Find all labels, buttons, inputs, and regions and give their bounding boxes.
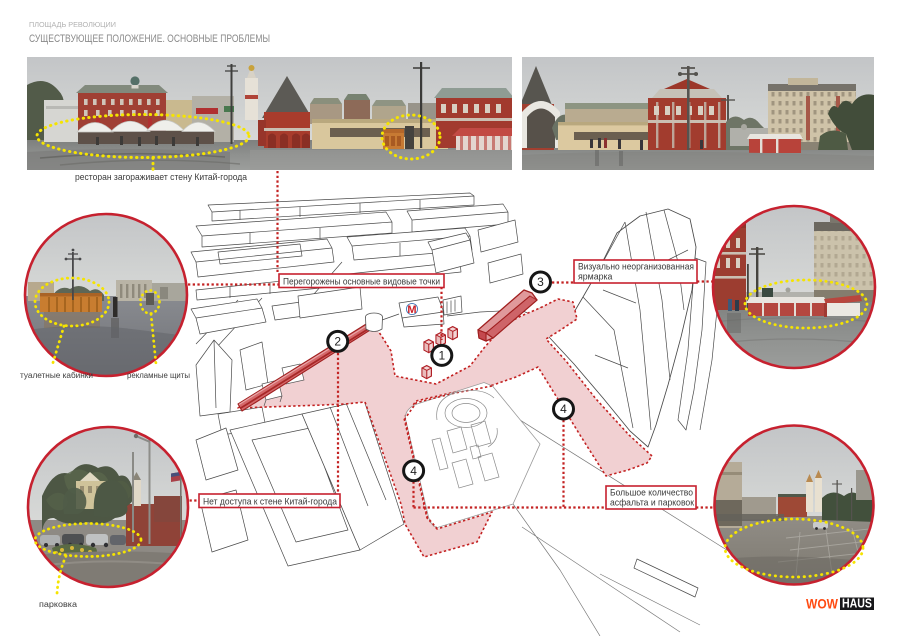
svg-text:HAUS: HAUS — [842, 597, 872, 611]
svg-text:WOW: WOW — [806, 597, 838, 612]
svg-text:Визуально неорганизованная: Визуально неорганизованная — [578, 262, 694, 272]
svg-text:туалетные кабинки: туалетные кабинки — [20, 370, 93, 380]
svg-text:парковка: парковка — [39, 599, 77, 609]
svg-text:М: М — [407, 304, 416, 316]
svg-text:ярмарка: ярмарка — [578, 272, 613, 282]
svg-text:4: 4 — [410, 464, 417, 478]
svg-text:Нет доступа к стене Китай-горо: Нет доступа к стене Китай-города — [203, 496, 337, 506]
svg-text:3: 3 — [537, 275, 544, 289]
svg-text:Перегорожены основные видовые: Перегорожены основные видовые точки — [283, 276, 440, 286]
svg-text:СУЩЕСТВУЮЩЕЕ ПОЛОЖЕНИЕ. ОСНОВН: СУЩЕСТВУЮЩЕЕ ПОЛОЖЕНИЕ. ОСНОВНЫЕ ПРОБЛЕМ… — [29, 33, 270, 45]
svg-text:рекламные щиты: рекламные щиты — [127, 370, 190, 380]
svg-text:1: 1 — [438, 349, 445, 363]
svg-text:ресторан загораживает стену Ки: ресторан загораживает стену Китай-города — [75, 172, 247, 182]
svg-text:ПЛОЩАДЬ РЕВОЛЮЦИИ: ПЛОЩАДЬ РЕВОЛЮЦИИ — [29, 20, 116, 29]
svg-text:2: 2 — [334, 335, 341, 349]
svg-text:Большое количество: Большое количество — [610, 488, 693, 498]
svg-text:асфальта и парковок: асфальта и парковок — [610, 498, 694, 508]
svg-text:4: 4 — [560, 402, 567, 416]
